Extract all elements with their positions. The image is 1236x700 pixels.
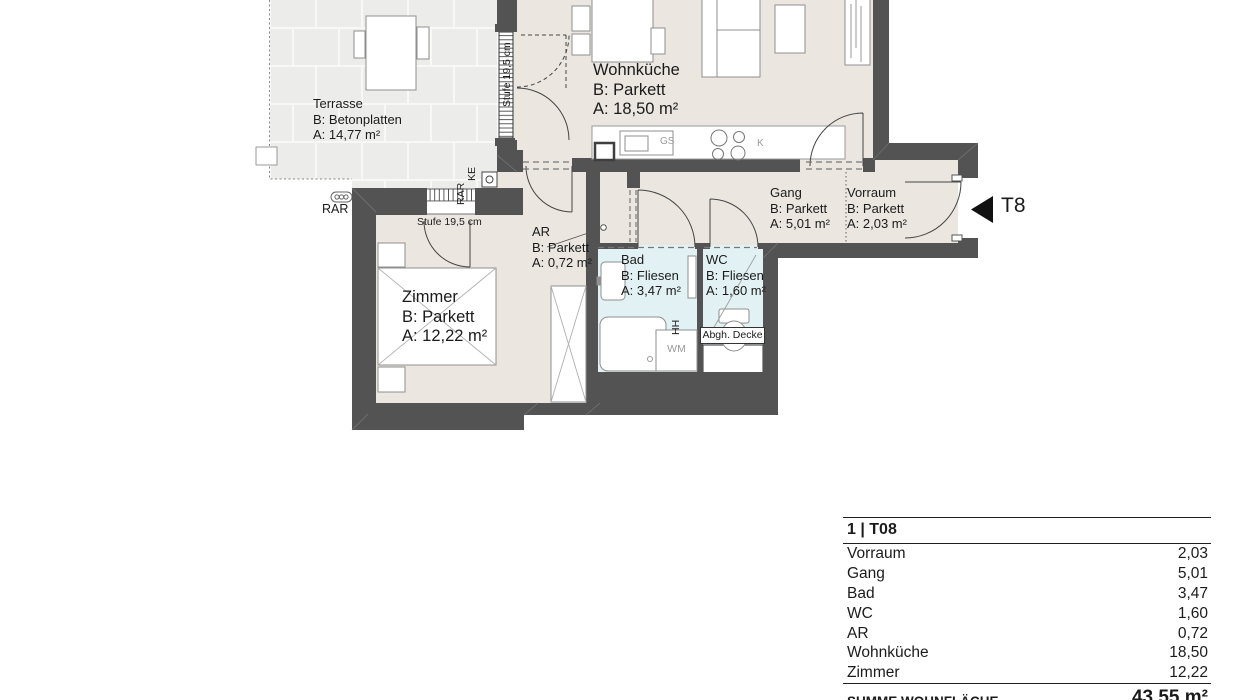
chair [572, 6, 590, 31]
room-label-wohnkueche: Wohnküche B: Parkett A: 18,50 m² [593, 61, 680, 120]
sofa [702, 0, 760, 77]
table-row: Zimmer12,22 [843, 663, 1211, 683]
room-label-ar: AR B: Parkett A: 0,72 m² [532, 224, 592, 271]
total-value: 43,55 m² [1132, 687, 1208, 700]
dining-table [592, 0, 653, 62]
rar-label-bottom: RAR [322, 202, 348, 216]
chair [651, 28, 665, 54]
total-label: SUMME WOHNFLÄCHE [847, 694, 999, 700]
rar-label-side: RAR [455, 183, 467, 205]
nightstand [378, 367, 405, 392]
table-row: Bad3,47 [843, 584, 1211, 604]
floorplan-page: Terrasse B: Betonplatten A: 14,77 m² Woh… [0, 0, 1236, 700]
room-label-terrasse: Terrasse B: Betonplatten A: 14,77 m² [313, 96, 402, 143]
bathroom-radiator [688, 256, 696, 298]
kitchen-pillar [595, 143, 614, 160]
table-row: Vorraum2,03 [843, 544, 1211, 564]
terrace-steps [419, 189, 479, 214]
table-row: AR0,72 [843, 624, 1211, 644]
stufe-label-steps: Stufe 19,5 cm [417, 216, 482, 228]
table-row: Wohnküche18,50 [843, 643, 1211, 663]
room-label-vorraum: Vorraum B: Parkett A: 2,03 m² [847, 185, 907, 232]
hh-label: HH [670, 320, 682, 335]
dishwasher-label: GS [660, 136, 674, 147]
ke-fixture-icon [482, 172, 497, 187]
room-label-zimmer: Zimmer B: Parkett A: 12,22 m² [402, 288, 487, 347]
wardrobe [845, 0, 870, 65]
unit-entrance-arrow-icon [971, 196, 993, 223]
table-total-row: SUMME WOHNFLÄCHE 43,55 m² [843, 684, 1211, 700]
suspended-ceiling-label: Abgh. Decke [700, 327, 765, 344]
table-row: Gang5,01 [843, 564, 1211, 584]
side-table [775, 5, 805, 53]
room-label-wc: WC B: Fliesen A: 1,60 m² [706, 252, 766, 299]
cooktop-label: K [757, 138, 764, 149]
room-label-bad: Bad B: Fliesen A: 3,47 m² [621, 252, 681, 299]
sink-tap [597, 277, 601, 285]
washing-machine-label: WM [656, 343, 697, 355]
rar-drain-icon [331, 192, 352, 202]
table-row: WC1,60 [843, 604, 1211, 624]
unit-door-label: T8 [1001, 194, 1026, 218]
nightstand [378, 243, 405, 267]
area-summary-table: 1 | T08 Vorraum2,03 Gang5,01 Bad3,47 WC1… [843, 517, 1211, 700]
ke-label: KE [466, 167, 478, 181]
table-title: 1 | T08 [843, 518, 1211, 543]
terrace-fixture-box [256, 147, 277, 165]
stufe-label-window: Stufe 19,5 cm [501, 42, 513, 107]
room-label-gang: Gang B: Parkett A: 5,01 m² [770, 185, 830, 232]
chair [572, 34, 590, 55]
